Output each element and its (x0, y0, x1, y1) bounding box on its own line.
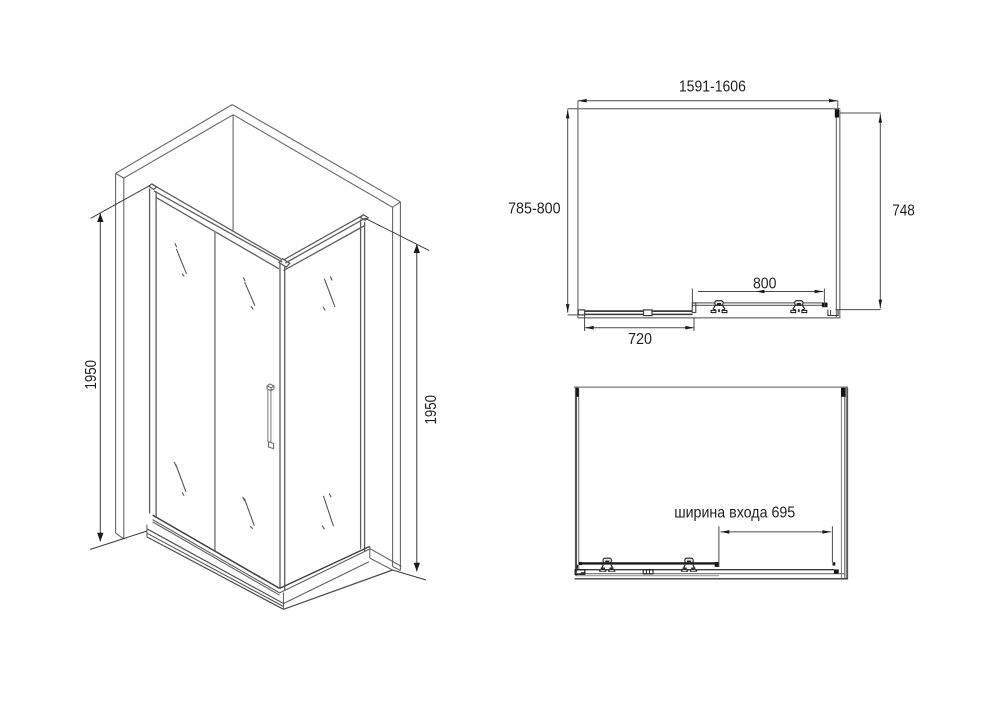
svg-text:800: 800 (753, 275, 777, 292)
svg-text:748: 748 (892, 203, 915, 220)
svg-text:1950: 1950 (423, 395, 440, 425)
svg-text:720: 720 (628, 331, 652, 348)
svg-text:ширина входа 695: ширина входа 695 (674, 504, 795, 521)
svg-text:785-800: 785-800 (508, 200, 561, 217)
svg-text:1591-1606: 1591-1606 (679, 78, 746, 95)
svg-text:1950: 1950 (83, 360, 100, 390)
